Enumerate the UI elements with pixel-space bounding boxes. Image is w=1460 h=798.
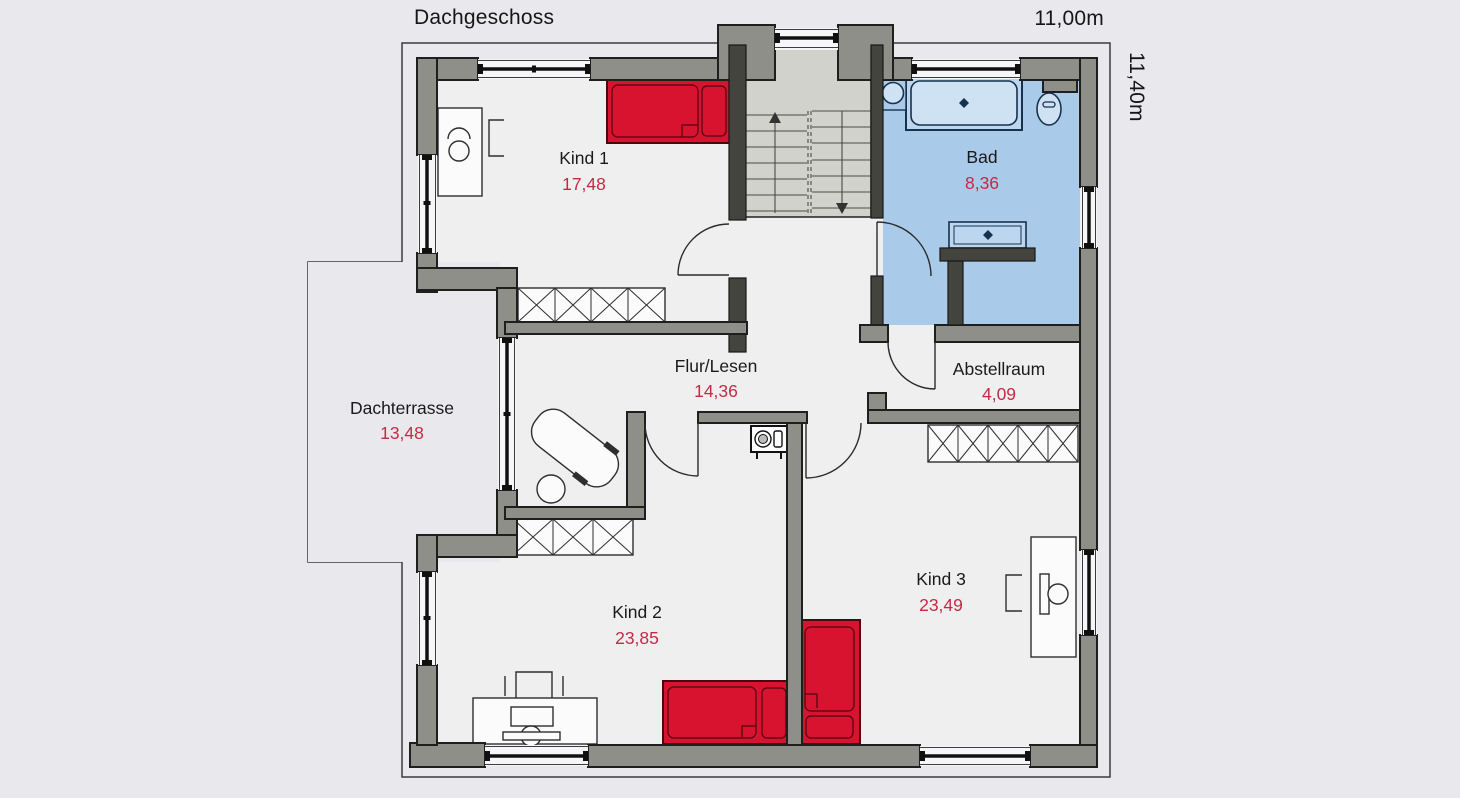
window-icon — [498, 338, 516, 490]
window-icon — [478, 59, 590, 79]
room-area-bad: 8,36 — [965, 173, 999, 193]
bed-icon — [607, 79, 731, 143]
floor-plan-page: Kind 1 17,48 Bad 8,36 Flur/Lesen 14,36 A… — [0, 0, 1460, 798]
dormer-window-icon — [775, 28, 838, 50]
room-area-kind2: 23,85 — [615, 628, 659, 648]
dimension-width-label: 11,00m — [1004, 7, 1104, 31]
dormer-wall — [838, 25, 893, 80]
wardrobe-icon — [928, 425, 1078, 462]
window-icon — [485, 745, 588, 766]
window-icon — [912, 59, 1020, 79]
window-icon — [418, 155, 437, 253]
side-table-icon — [537, 475, 565, 503]
bathtub-icon — [906, 76, 1022, 130]
room-area-dachterrasse: 13,48 — [380, 423, 424, 443]
floor-plan-drawing: Kind 1 17,48 Bad 8,36 Flur/Lesen 14,36 A… — [0, 0, 1460, 798]
window-icon — [920, 746, 1030, 766]
room-label-kind1: Kind 1 — [559, 148, 609, 168]
dimension-height-label: 11,40m — [1124, 52, 1148, 122]
bed-icon — [663, 681, 791, 744]
window-icon — [1081, 550, 1097, 635]
wardrobe-icon — [513, 519, 633, 555]
bed-icon — [799, 620, 860, 744]
room-label-dachterrasse: Dachterrasse — [350, 398, 454, 418]
room-label-kind3: Kind 3 — [916, 569, 966, 589]
room-label-bad: Bad — [966, 147, 997, 167]
room-label-kind2: Kind 2 — [612, 602, 662, 622]
room-label-flur: Flur/Lesen — [675, 356, 758, 376]
vanity-icon — [949, 222, 1026, 248]
room-label-abstellraum: Abstellraum — [953, 359, 1045, 379]
wardrobe-icon — [518, 288, 665, 322]
room-area-kind1: 17,48 — [562, 174, 606, 194]
toilet-icon — [1037, 93, 1061, 125]
washbasin-icon — [881, 76, 906, 110]
window-icon — [418, 572, 437, 665]
room-area-kind3: 23,49 — [919, 595, 963, 615]
window-icon — [1081, 187, 1097, 248]
room-area-abstellraum: 4,09 — [982, 384, 1016, 404]
room-area-flur: 14,36 — [694, 381, 738, 401]
page-title: Dachgeschoss — [414, 6, 554, 30]
